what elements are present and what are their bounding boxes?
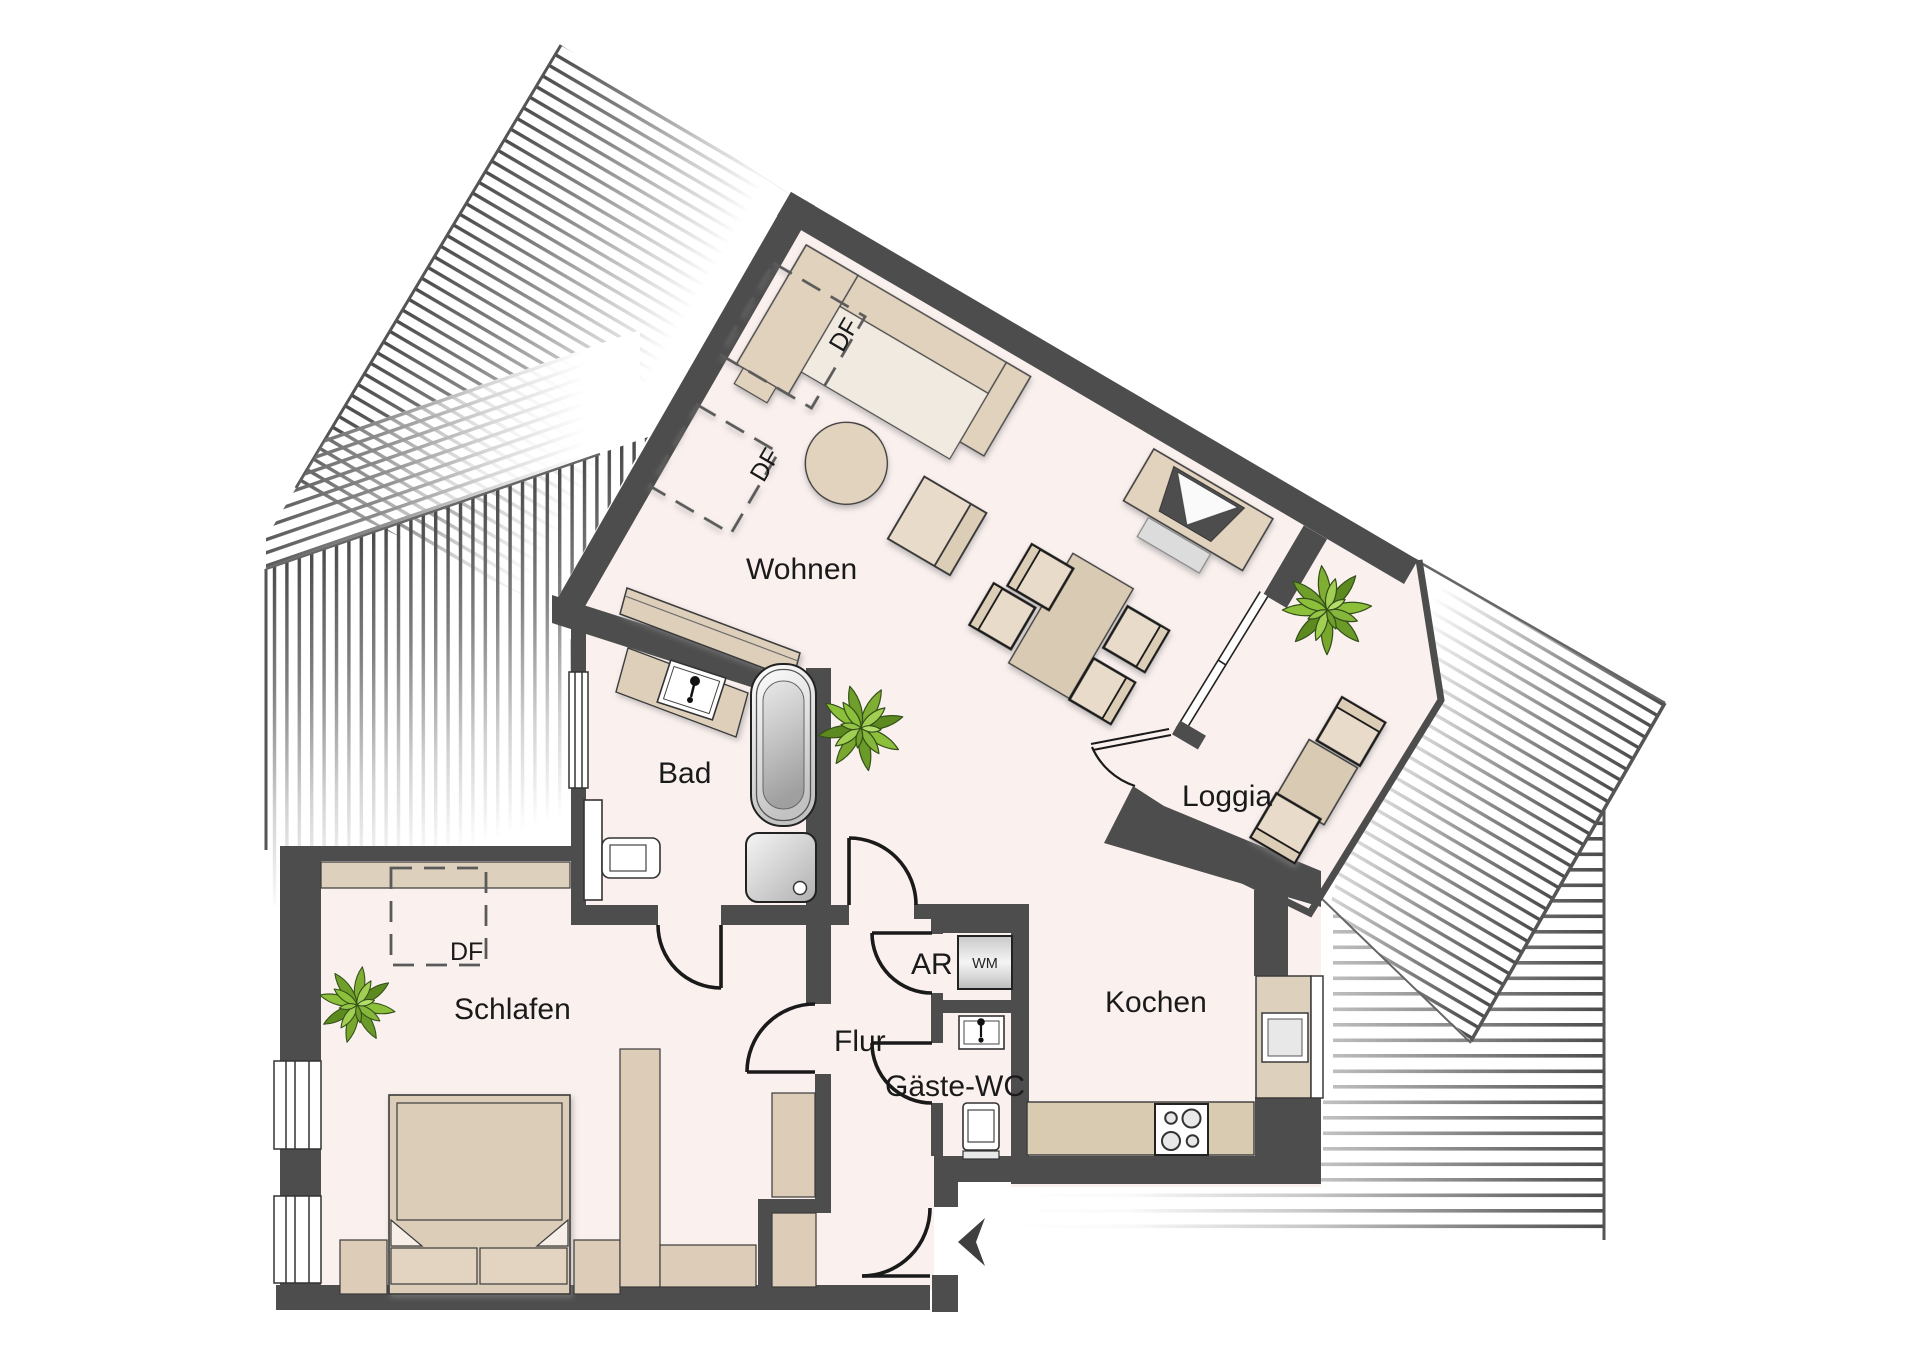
svg-text:Flur: Flur [834,1025,886,1058]
svg-text:Loggia: Loggia [1182,780,1272,813]
svg-text:Wohnen: Wohnen [746,553,857,586]
svg-text:Gäste-WC: Gäste-WC [885,1070,1025,1103]
svg-text:Kochen: Kochen [1105,986,1207,1019]
svg-text:AR: AR [911,948,953,981]
svg-text:Bad: Bad [658,757,711,790]
svg-text:DF: DF [450,938,483,966]
svg-text:Schlafen: Schlafen [454,993,571,1026]
svg-text:WM: WM [972,956,998,972]
